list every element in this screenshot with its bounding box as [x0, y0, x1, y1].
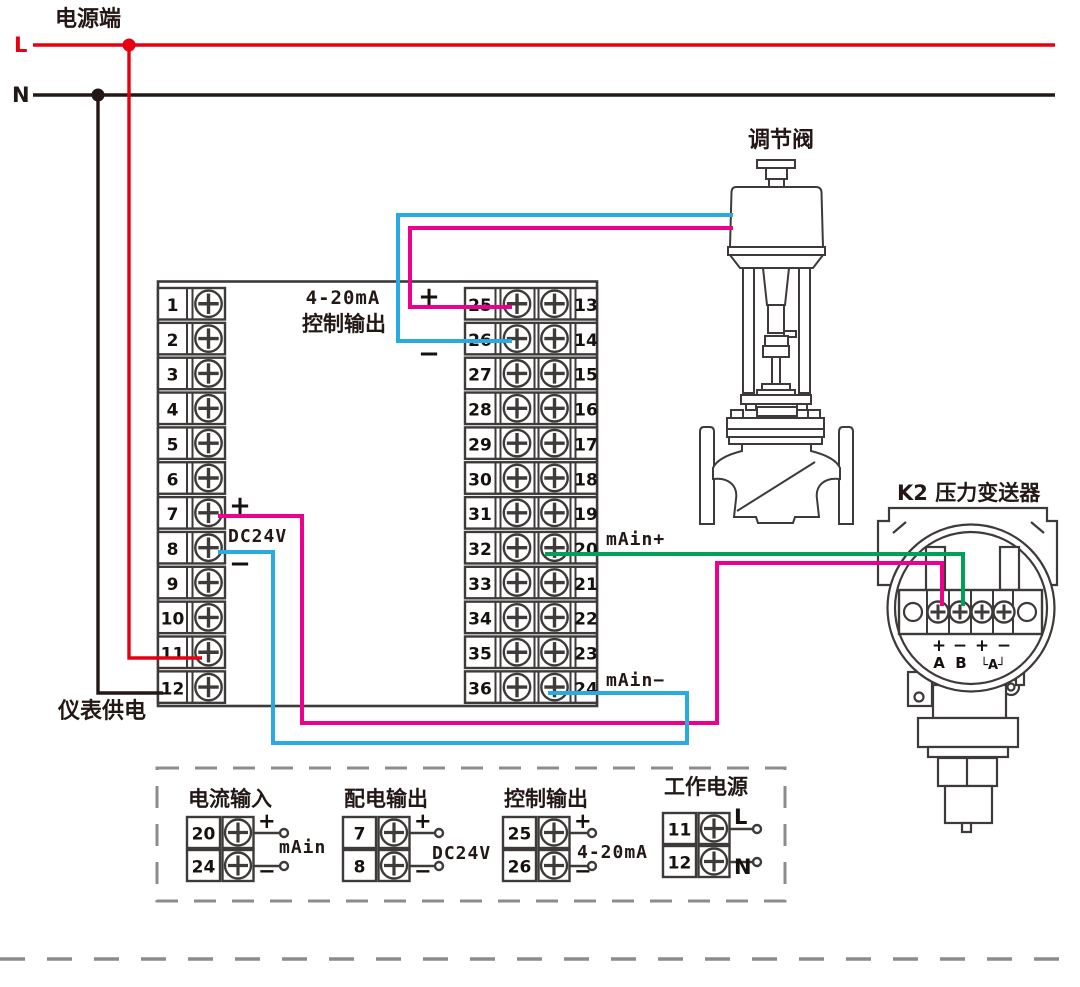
- pressure-transmitter: [878, 508, 1057, 832]
- legend-sign: L: [734, 805, 747, 829]
- terminal-number: 5: [167, 435, 179, 455]
- legend-wire-end-icon: [753, 858, 761, 866]
- tx-sign-1: +: [932, 636, 946, 656]
- terminal-number: 22: [574, 610, 598, 630]
- terminal-number: 3: [167, 366, 179, 386]
- legend-wire-end-icon: [435, 829, 443, 837]
- terminal-number: 13: [574, 296, 598, 316]
- terminal-number: 25: [508, 825, 532, 845]
- valve-label: 调节阀: [748, 128, 814, 153]
- legend-sign: +: [258, 809, 276, 833]
- terminal-number: 20: [574, 540, 598, 560]
- legend-group-title: 控制输出: [504, 787, 588, 811]
- terminal26-minus-sign: −: [418, 339, 440, 369]
- legend-sign: −: [258, 859, 276, 883]
- terminal-number: 12: [668, 854, 692, 874]
- valve-left-flange-icon: [700, 427, 714, 524]
- tx-sign-4: −: [997, 636, 1011, 656]
- terminal-number: 7: [167, 505, 179, 525]
- control-output-range-label: 4-20mA: [306, 287, 381, 309]
- dc24v-label: DC24V: [228, 526, 287, 547]
- valve-actuator-icon: [730, 187, 823, 247]
- valve-handle-icon: [757, 160, 795, 168]
- wiring-diagram: 123456789101112 251326142715281629173018…: [0, 0, 1080, 987]
- terminal-number: 36: [468, 679, 492, 699]
- terminal-number: 23: [574, 645, 598, 665]
- instrument-supply-label: 仪表供电: [57, 698, 146, 724]
- terminal-number: 31: [468, 505, 492, 525]
- wiring-diagram-page: 123456789101112 251326142715281629173018…: [0, 0, 1080, 987]
- terminal-number: 11: [161, 645, 185, 665]
- legend-group-title: 配电输出: [344, 787, 428, 811]
- terminal-number: 6: [167, 470, 179, 490]
- main-minus-wire: [218, 552, 687, 743]
- legend-wire-end-icon: [753, 825, 761, 833]
- tx-letter-b: B: [955, 654, 966, 672]
- tx-group-label: └A┘: [980, 656, 1006, 673]
- terminal-number: 26: [508, 858, 532, 878]
- terminal-number: 27: [468, 366, 492, 386]
- tx-mount-hole-icon: [1018, 603, 1036, 621]
- control-output-label: 控制输出: [302, 312, 386, 336]
- left-terminal-strip: 123456789101112: [158, 288, 225, 703]
- terminal-number: 20: [192, 825, 216, 845]
- terminal-number: 30: [468, 470, 492, 490]
- terminal-number: 4: [167, 401, 179, 421]
- main-minus-label: mAin−: [606, 670, 665, 691]
- legend-group-title: 电流输入: [188, 787, 272, 811]
- legend-wire-end-icon: [280, 862, 288, 870]
- terminal-number: 9: [167, 575, 179, 595]
- legend-sign: +: [574, 809, 592, 833]
- terminal-number: 11: [668, 821, 692, 841]
- tx-letter-a: A: [933, 654, 945, 672]
- terminal-number: 35: [468, 645, 492, 665]
- terminal-number: 28: [468, 401, 492, 421]
- terminal-number: 17: [574, 435, 598, 455]
- power-terminal-label: 电源端: [55, 7, 121, 32]
- middle-terminal-strip: 2513261427152816291730183119322033213422…: [465, 288, 598, 703]
- legend-wire-end-icon: [280, 829, 288, 837]
- terminal-number: 19: [574, 505, 598, 525]
- terminal-number: 10: [161, 610, 185, 630]
- terminal-number: 15: [574, 366, 598, 386]
- tx-mount-hole-icon: [904, 603, 922, 621]
- legend-sign: −: [414, 859, 432, 883]
- terminal-number: 16: [574, 401, 598, 421]
- terminal-number: 1: [167, 296, 179, 316]
- terminal-number: 29: [468, 435, 492, 455]
- legend-group-title: 工作电源: [664, 775, 748, 799]
- terminal-number: 8: [354, 858, 366, 878]
- terminal-number: 7: [354, 825, 366, 845]
- live-line-label: L: [14, 33, 27, 57]
- legend-tag: mAin: [279, 837, 326, 858]
- tx-sign-2: −: [953, 636, 967, 656]
- legend-sign: N: [734, 855, 752, 879]
- main-plus-label: mAin+: [606, 529, 665, 550]
- terminal-number: 14: [574, 331, 598, 351]
- terminal-number: 2: [167, 331, 179, 351]
- terminal-number: 18: [574, 470, 598, 490]
- legend-tag: DC24V: [432, 843, 491, 864]
- legend-tag: 4-20mA: [577, 842, 648, 863]
- terminal-number: 8: [167, 540, 179, 560]
- terminal-number: 34: [468, 610, 492, 630]
- power-bus: [33, 39, 1055, 102]
- transmitter-label: K2 压力变送器: [897, 481, 1041, 505]
- valve-right-flange-icon: [839, 427, 853, 524]
- terminal-number: 21: [574, 575, 598, 595]
- tx-sign-3: +: [975, 636, 989, 656]
- terminal-number: 24: [192, 858, 216, 878]
- terminal-number: 24: [574, 679, 598, 699]
- transmitter-process-connection-icon: [945, 786, 992, 823]
- legend-sign: +: [414, 809, 432, 833]
- terminal-number: 33: [468, 575, 492, 595]
- terminal-number: 32: [468, 540, 492, 560]
- neutral-line-label: N: [12, 83, 30, 107]
- legend-groups: 电流输入20+24−mAin配电输出7+8−DC24V控制输出25+26−4-2…: [187, 775, 761, 883]
- valve-body-icon: [713, 444, 840, 523]
- terminal-number: 12: [161, 679, 185, 699]
